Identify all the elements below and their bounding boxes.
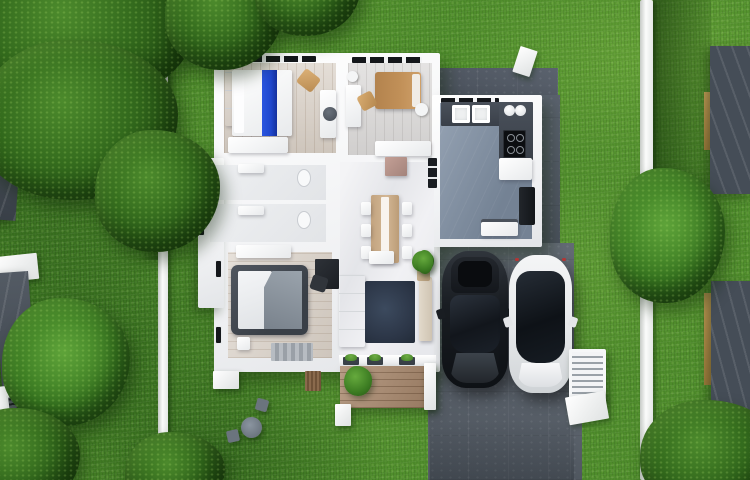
deck-frame: [424, 363, 436, 410]
dining-chair: [402, 246, 412, 259]
bedroom2-dresser: [375, 141, 431, 156]
bedroom3-side-table: [237, 337, 250, 350]
black-car-windshield: [450, 295, 500, 353]
living-rug: [365, 281, 415, 343]
black-car-mirror-left: [436, 308, 447, 320]
bedroom1-blue-runner: [262, 70, 277, 136]
deck-steps: [335, 404, 351, 426]
bedroom2-stool-b: [415, 103, 428, 116]
dining-chair: [361, 202, 371, 215]
bedroom2-pillows: [412, 74, 420, 107]
bedroom3-cabinet: [236, 245, 291, 258]
kitchen-roll-b: [515, 105, 526, 116]
living-bench: [419, 277, 432, 341]
burner: [507, 134, 515, 142]
kitchen-island: [481, 219, 518, 236]
dining-chair: [402, 224, 412, 237]
bedroom2-top-window: [352, 57, 422, 63]
bedroom1-round-table: [323, 107, 337, 121]
bedroom3-window-b: [216, 327, 221, 343]
black-car-hood: [449, 353, 501, 383]
white-car-glass: [516, 271, 565, 363]
dining-chair: [361, 224, 371, 237]
bedroom2-desk: [346, 85, 361, 127]
bedroom1-pillows: [234, 73, 244, 133]
deck-bush: [344, 366, 372, 396]
burner: [507, 146, 515, 154]
living-sofa: [339, 275, 365, 347]
bedroom3-window-a: [216, 261, 221, 277]
planter-grass: [369, 354, 381, 361]
white-car-hood: [517, 363, 564, 387]
black-car-sunroof: [458, 261, 492, 287]
kitchen-fridge: [519, 187, 535, 225]
bedroom3-blanket: [264, 271, 302, 329]
aerial-house-render: [0, 0, 750, 480]
bedroom2-stool-a: [347, 71, 358, 82]
planter-grass: [401, 354, 413, 361]
burner: [516, 146, 524, 154]
driveway-bush: [417, 250, 433, 274]
sink-upper: [238, 164, 264, 173]
bedroom3-rug: [271, 343, 313, 361]
patio-chair-b: [226, 429, 240, 443]
white-car-mirror-left: [503, 316, 514, 328]
neighbor-roof-top-right: [710, 46, 750, 194]
living-console: [369, 251, 394, 264]
kitchen-sink-a: [452, 105, 470, 123]
dining-chair: [402, 202, 412, 215]
patio-table: [241, 417, 262, 438]
white-car: [509, 255, 572, 393]
bedroom1-cabinet: [228, 137, 288, 153]
white-car-taillight-right: [562, 258, 566, 261]
dining-wall-shelf: [428, 158, 437, 188]
toilet-lower: [298, 212, 310, 228]
planter-grass: [345, 354, 357, 361]
dining-sideboard: [385, 157, 407, 176]
toilet-upper: [298, 170, 310, 186]
sw-terrace: [213, 371, 239, 389]
burner: [516, 134, 524, 142]
black-car: [442, 251, 508, 388]
white-car-taillight-left: [515, 258, 519, 261]
sink-lower: [238, 206, 264, 215]
garden-bench: [305, 371, 321, 391]
kitchen-sink-b: [472, 105, 490, 123]
kitchen-cabinet: [499, 158, 532, 180]
kitchen-roll-a: [504, 105, 515, 116]
